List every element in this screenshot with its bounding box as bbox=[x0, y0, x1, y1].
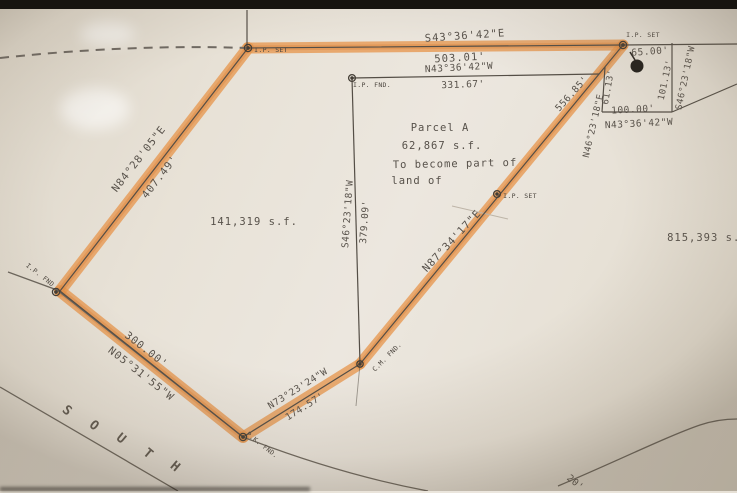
photo-edge-bottom bbox=[0, 487, 310, 491]
area-east: 815,393 s.f. bbox=[667, 232, 737, 244]
road-curve bbox=[558, 419, 737, 486]
parcel-note-2: land of bbox=[391, 175, 442, 187]
boundary-line-diagonal bbox=[360, 45, 623, 364]
parcel-title: Parcel A bbox=[411, 122, 470, 134]
survey-plat-photo: { "edges": { "top": {"bearing": "S43°36'… bbox=[0, 0, 737, 491]
road-lines bbox=[0, 272, 737, 491]
dashed-boundary-line bbox=[0, 47, 246, 58]
inner-line-331 bbox=[352, 74, 599, 78]
distance-inner: 331.67' bbox=[441, 79, 485, 92]
area-west: 141,319 s.f. bbox=[210, 216, 298, 228]
photo-edge-top bbox=[0, 0, 737, 9]
plat-drawing bbox=[0, 0, 737, 491]
monument-label-diag: I.P. SET bbox=[503, 192, 537, 200]
boundary-line-west bbox=[60, 48, 248, 291]
monument-label-inner: I.P. FND. bbox=[353, 81, 391, 89]
distance-100: 100.00' bbox=[611, 103, 655, 116]
parcel-area: 62,867 s.f. bbox=[402, 140, 483, 152]
boundary-line-southwest bbox=[60, 291, 243, 437]
parcel-note-1: To become part of bbox=[393, 157, 518, 171]
boundary-line-south bbox=[243, 364, 360, 437]
monument-label-ne: I.P. SET bbox=[626, 31, 660, 39]
road-edge-lower bbox=[0, 387, 178, 491]
monument-label-nw: I.P. SET bbox=[254, 46, 288, 54]
